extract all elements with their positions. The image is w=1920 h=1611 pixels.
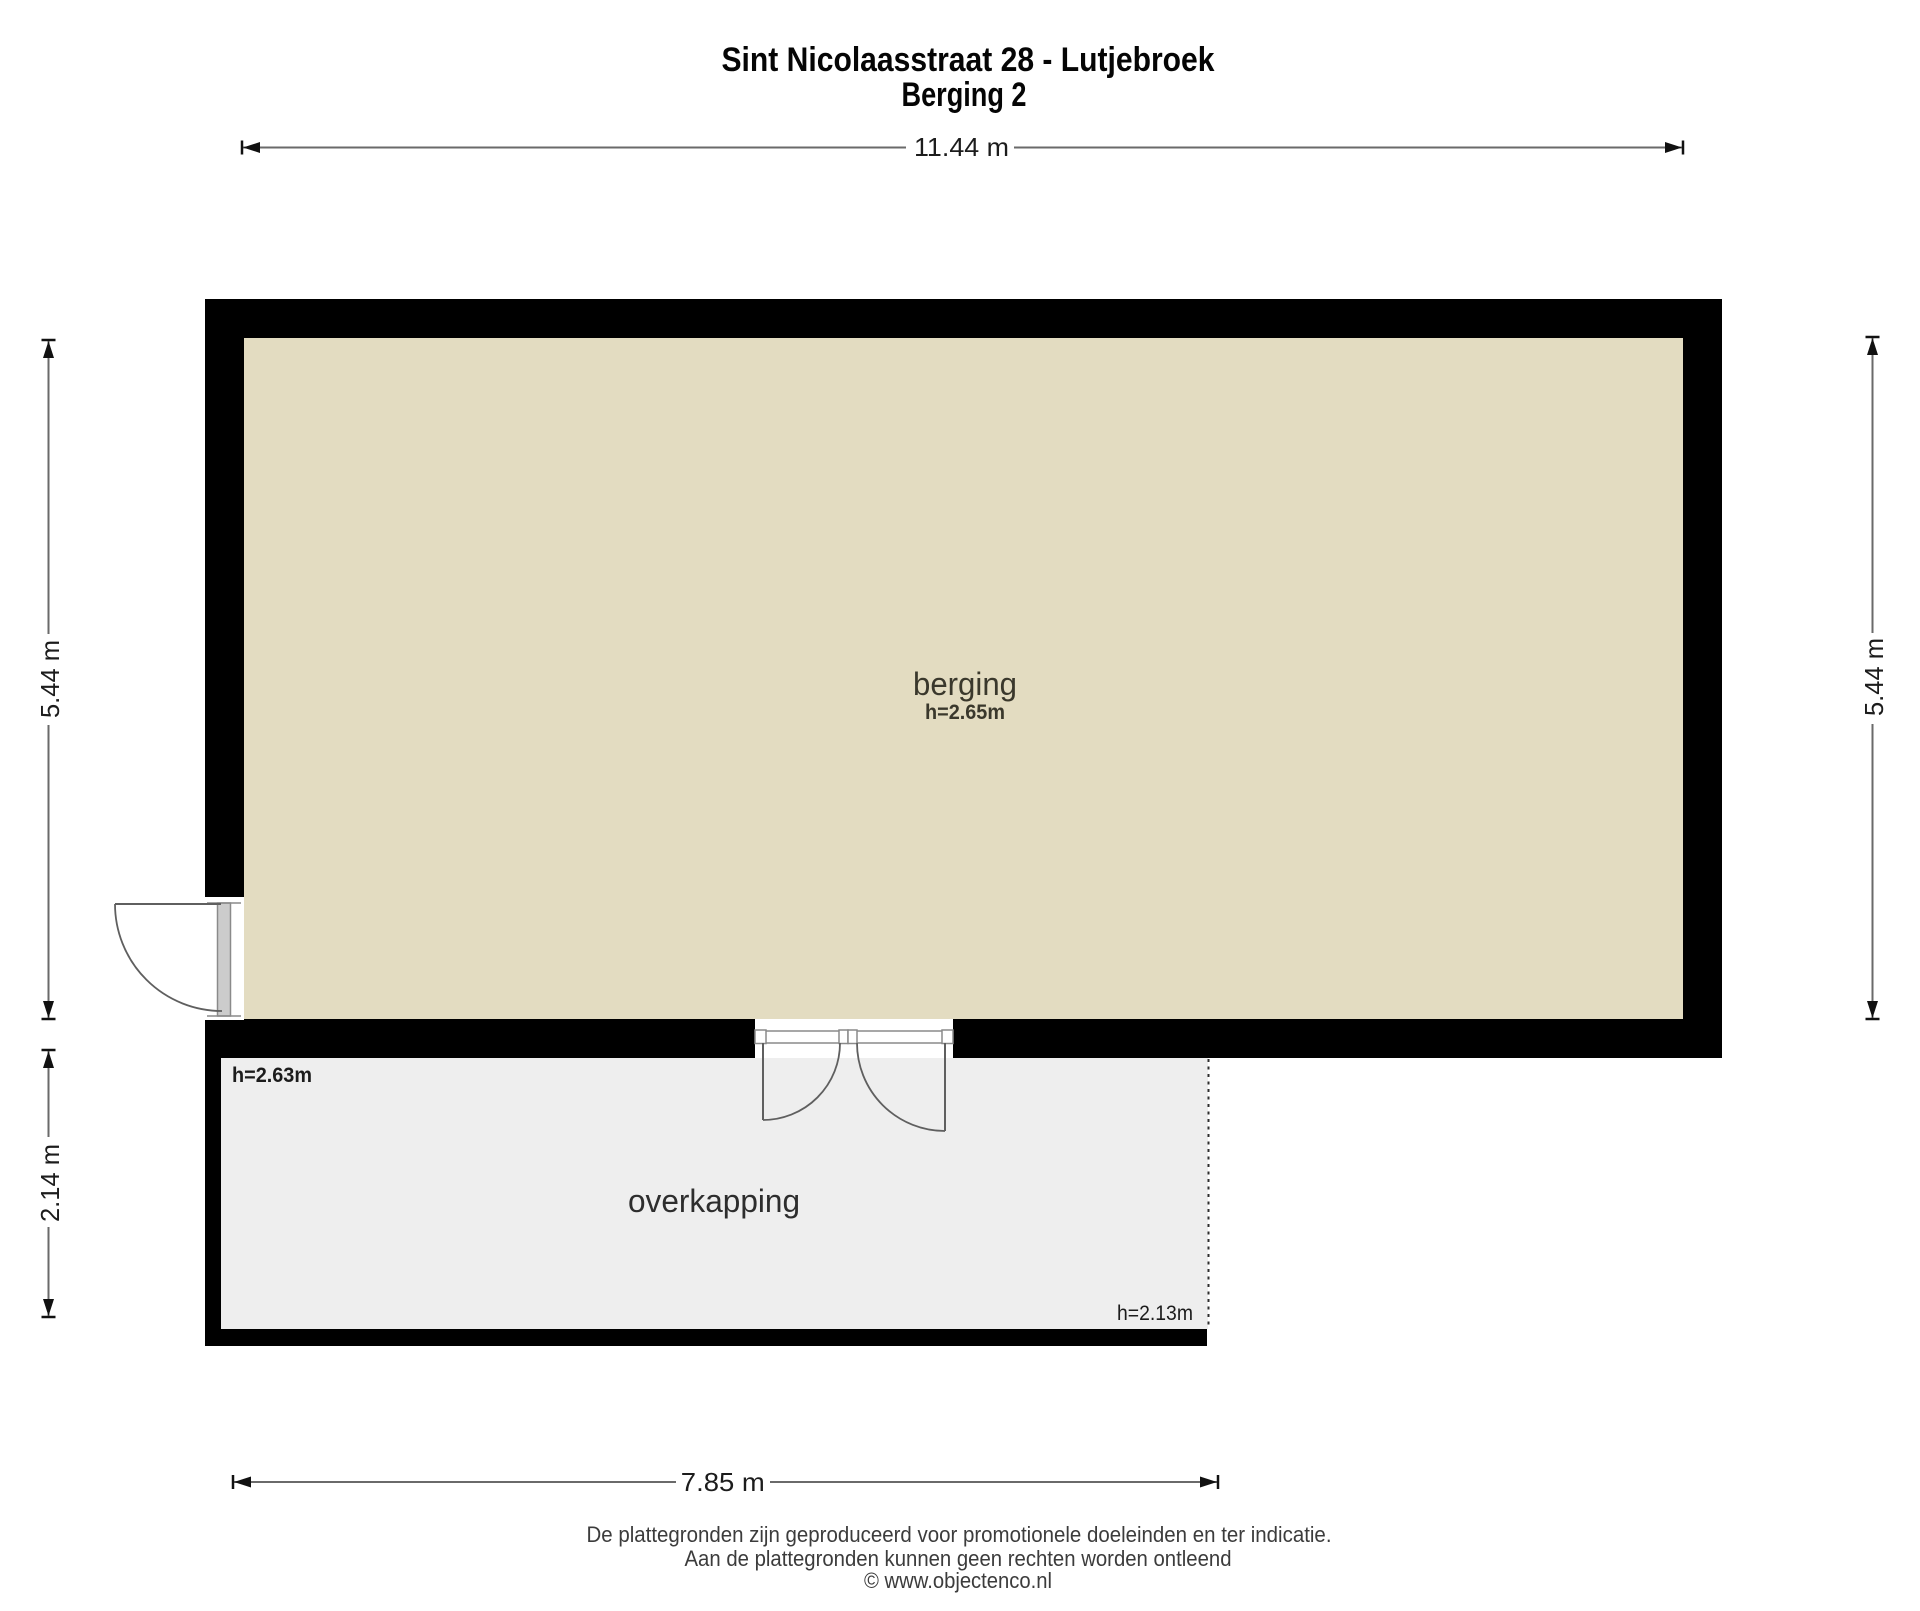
svg-text:Sint Nicolaasstraat 28 - Lutje: Sint Nicolaasstraat 28 - Lutjebroek [722,41,1215,79]
svg-text:© www.objectenco.nl: © www.objectenco.nl [864,1568,1052,1593]
svg-text:h=2.13m: h=2.13m [1117,1302,1193,1325]
svg-text:5.44 m: 5.44 m [35,640,65,718]
svg-text:Berging 2: Berging 2 [902,76,1027,114]
svg-text:7.85 m: 7.85 m [681,1467,765,1497]
svg-text:2.14 m: 2.14 m [35,1144,65,1222]
svg-text:overkapping: overkapping [628,1183,800,1219]
svg-text:h=2.65m: h=2.65m [925,701,1005,724]
svg-text:5.44 m: 5.44 m [1859,638,1889,716]
svg-text:berging: berging [913,666,1017,702]
svg-text:11.44 m: 11.44 m [914,132,1009,162]
svg-text:De plattegronden zijn geproduc: De plattegronden zijn geproduceerd voor … [587,1522,1332,1547]
svg-text:h=2.63m: h=2.63m [232,1064,312,1087]
